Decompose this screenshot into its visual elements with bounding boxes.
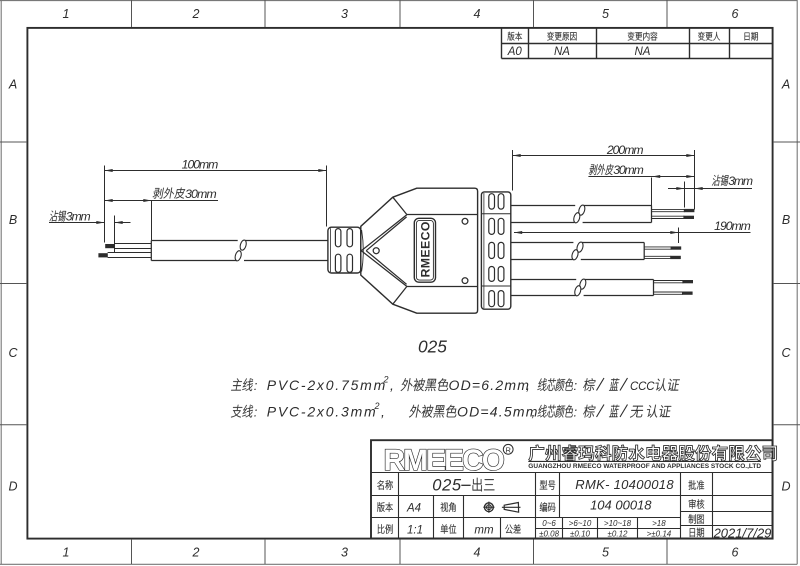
svg-text:100mm: 100mm bbox=[182, 158, 218, 172]
svg-text:0~6: 0~6 bbox=[542, 519, 556, 528]
svg-text:30mm: 30mm bbox=[613, 163, 643, 177]
svg-text:±0.08: ±0.08 bbox=[539, 530, 560, 539]
svg-text:3: 3 bbox=[341, 546, 348, 560]
svg-text:3: 3 bbox=[341, 7, 348, 21]
svg-text:D: D bbox=[781, 480, 790, 494]
svg-text:R: R bbox=[505, 445, 511, 454]
svg-text:D: D bbox=[8, 480, 17, 494]
svg-text:5: 5 bbox=[602, 546, 609, 560]
svg-text:5: 5 bbox=[602, 7, 609, 21]
svg-text::: : bbox=[574, 378, 578, 393]
svg-text:mm: mm bbox=[474, 525, 494, 537]
svg-text:3mm: 3mm bbox=[728, 174, 753, 188]
svg-text:>10~18: >10~18 bbox=[604, 519, 632, 528]
svg-text:>18: >18 bbox=[652, 519, 666, 528]
svg-text:B: B bbox=[9, 213, 17, 227]
svg-text:PVC-2x0.75mm: PVC-2x0.75mm bbox=[267, 377, 387, 393]
svg-text::: : bbox=[574, 405, 578, 420]
svg-text:2: 2 bbox=[192, 7, 200, 21]
svg-text:,: , bbox=[532, 404, 536, 420]
svg-text:C: C bbox=[781, 346, 791, 360]
svg-text::: : bbox=[254, 378, 258, 393]
svg-text:2: 2 bbox=[383, 375, 389, 385]
svg-text:±0.10: ±0.10 bbox=[570, 530, 591, 539]
svg-text:1: 1 bbox=[63, 7, 70, 21]
svg-text:1: 1 bbox=[63, 546, 70, 560]
svg-text:104 00018: 104 00018 bbox=[590, 498, 652, 513]
svg-text:4: 4 bbox=[474, 7, 481, 21]
svg-text:A: A bbox=[8, 78, 17, 92]
svg-text:CCC: CCC bbox=[630, 381, 655, 393]
svg-text:30mm: 30mm bbox=[185, 187, 216, 201]
svg-text:,: , bbox=[390, 377, 394, 393]
svg-text:6: 6 bbox=[732, 546, 739, 560]
svg-text:C: C bbox=[8, 346, 18, 360]
svg-text:A0: A0 bbox=[507, 46, 523, 58]
svg-text:NA: NA bbox=[554, 46, 570, 58]
svg-text:B: B bbox=[782, 213, 790, 227]
svg-text:,: , bbox=[381, 404, 385, 420]
svg-text:3mm: 3mm bbox=[66, 210, 91, 224]
svg-text:±0.12: ±0.12 bbox=[608, 530, 629, 539]
svg-text:RMEECO: RMEECO bbox=[384, 444, 504, 477]
svg-text:GUANGZHOU RMEECO WATERPROOF AN: GUANGZHOU RMEECO WATERPROOF AND APPLIANC… bbox=[528, 463, 761, 470]
svg-text:2: 2 bbox=[192, 546, 200, 560]
svg-text:>±0.14: >±0.14 bbox=[647, 530, 672, 539]
svg-text:RMK- 10400018: RMK- 10400018 bbox=[575, 477, 674, 492]
svg-text:025: 025 bbox=[418, 337, 447, 357]
svg-text:,: , bbox=[526, 377, 530, 393]
svg-text:>6~10: >6~10 bbox=[569, 519, 592, 528]
svg-text:A: A bbox=[781, 78, 790, 92]
svg-text:200mm: 200mm bbox=[606, 143, 643, 157]
svg-text:1:1: 1:1 bbox=[407, 525, 423, 537]
svg-text:OD=4.5mm: OD=4.5mm bbox=[457, 404, 539, 420]
svg-text:A4: A4 bbox=[406, 503, 421, 515]
svg-text:OD=6.2mm: OD=6.2mm bbox=[449, 377, 531, 393]
svg-text::: : bbox=[254, 405, 258, 420]
svg-text:PVC-2x0.3mm: PVC-2x0.3mm bbox=[267, 404, 378, 420]
svg-text:6: 6 bbox=[732, 7, 739, 21]
svg-text:2021/7/29: 2021/7/29 bbox=[713, 525, 772, 540]
svg-text:025: 025 bbox=[432, 477, 462, 495]
svg-text:190mm: 190mm bbox=[714, 219, 750, 233]
svg-text:4: 4 bbox=[474, 546, 481, 560]
svg-text:NA: NA bbox=[635, 46, 651, 58]
svg-text:2: 2 bbox=[374, 401, 380, 411]
svg-text:RMEECO: RMEECO bbox=[418, 221, 432, 277]
